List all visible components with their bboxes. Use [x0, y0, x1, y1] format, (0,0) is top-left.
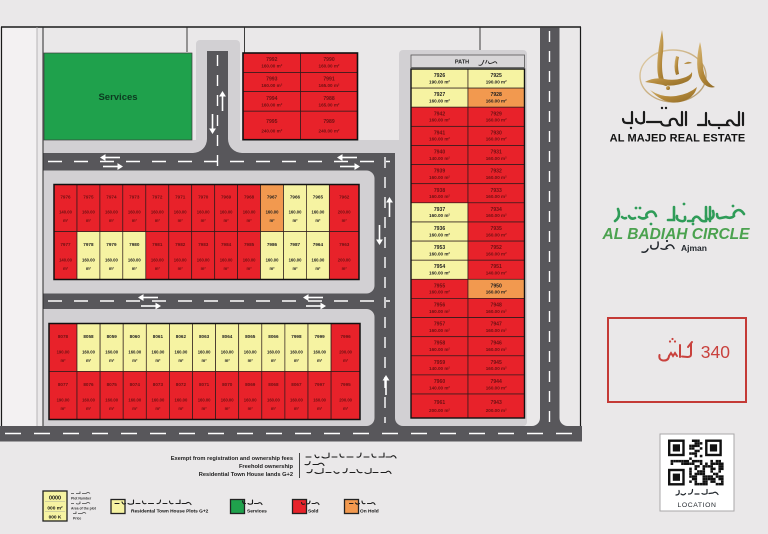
svg-text:7967: 7967	[267, 195, 278, 200]
svg-text:160.00 m²: 160.00 m²	[429, 271, 450, 276]
svg-text:160.00: 160.00	[244, 349, 257, 354]
svg-text:7955: 7955	[434, 283, 445, 289]
svg-text:7941: 7941	[434, 130, 445, 136]
svg-text:160.00: 160.00	[82, 397, 95, 402]
svg-text:7937: 7937	[434, 207, 445, 213]
svg-text:7935: 7935	[491, 226, 502, 232]
svg-text:160.00 m²: 160.00 m²	[486, 99, 507, 104]
svg-text:7987: 7987	[290, 242, 301, 247]
svg-text:7936: 7936	[434, 226, 445, 232]
svg-text:160.00 m²: 160.00 m²	[429, 137, 450, 142]
svg-text:200.00: 200.00	[338, 210, 351, 215]
svg-text:m²: m²	[202, 358, 208, 363]
svg-text:7925: 7925	[491, 73, 502, 79]
svg-text:160.00: 160.00	[243, 257, 256, 262]
svg-text:m²: m²	[269, 218, 275, 223]
svg-text:LOCATION: LOCATION	[677, 502, 716, 509]
svg-text:7976: 7976	[60, 195, 71, 200]
svg-text:AL MAJED REAL ESTATE: AL MAJED REAL ESTATE	[610, 133, 746, 145]
svg-text:160.00 m²: 160.00 m²	[486, 118, 507, 123]
svg-text:7988: 7988	[323, 96, 334, 102]
svg-text:160.00 m²: 160.00 m²	[261, 64, 282, 69]
svg-text:140.00 m²: 140.00 m²	[429, 156, 450, 161]
svg-text:8076: 8076	[83, 382, 94, 387]
svg-text:m²: m²	[269, 266, 275, 271]
svg-text:m²: m²	[248, 406, 254, 411]
svg-text:160.00 m²: 160.00 m²	[486, 366, 507, 371]
svg-text:7992: 7992	[266, 57, 277, 63]
svg-text:8060: 8060	[130, 334, 141, 339]
svg-text:7939: 7939	[434, 169, 445, 175]
svg-text:160.00: 160.00	[128, 257, 141, 262]
svg-text:7979: 7979	[106, 242, 117, 247]
svg-text:8064: 8064	[222, 334, 233, 339]
svg-text:160.00 m²: 160.00 m²	[429, 175, 450, 180]
svg-text:140.00: 140.00	[59, 210, 72, 215]
svg-text:160.00 m²: 160.00 m²	[429, 118, 450, 123]
svg-text:160.00: 160.00	[221, 349, 234, 354]
svg-text:Services: Services	[247, 509, 267, 515]
svg-text:160.00: 160.00	[128, 210, 141, 215]
svg-text:7996: 7996	[340, 334, 351, 339]
svg-text:140.00 m²: 140.00 m²	[429, 366, 450, 371]
svg-text:160.00 m²: 160.00 m²	[486, 290, 507, 295]
svg-text:7963: 7963	[339, 242, 350, 247]
svg-text:m²: m²	[292, 266, 298, 271]
svg-text:7978: 7978	[83, 242, 94, 247]
svg-text:m²: m²	[60, 406, 66, 411]
svg-text:160.00 m²: 160.00 m²	[429, 328, 450, 333]
svg-text:160.00: 160.00	[311, 257, 324, 262]
svg-text:m²: m²	[132, 358, 138, 363]
svg-text:m²: m²	[86, 266, 92, 271]
svg-text:140.00 m²: 140.00 m²	[486, 271, 507, 276]
svg-text:m²: m²	[109, 266, 115, 271]
svg-text:m²: m²	[109, 406, 115, 411]
svg-text:m²: m²	[294, 406, 300, 411]
svg-text:7947: 7947	[491, 322, 502, 328]
svg-text:160.00: 160.00	[266, 257, 279, 262]
svg-text:7957: 7957	[434, 322, 445, 328]
svg-text:7973: 7973	[129, 195, 140, 200]
svg-text:200.00: 200.00	[339, 349, 352, 354]
svg-text:7983: 7983	[198, 242, 209, 247]
svg-text:160.00 m²: 160.00 m²	[486, 232, 507, 237]
svg-text:7965: 7965	[313, 195, 324, 200]
svg-text:m²: m²	[202, 406, 208, 411]
svg-text:7982: 7982	[175, 242, 186, 247]
svg-text:7970: 7970	[198, 195, 209, 200]
svg-text:160.00: 160.00	[105, 397, 118, 402]
svg-text:7974: 7974	[106, 195, 117, 200]
svg-text:m²: m²	[343, 358, 349, 363]
svg-text:160.00: 160.00	[105, 349, 118, 354]
svg-text:7966: 7966	[290, 195, 301, 200]
svg-text:m²: m²	[178, 266, 184, 271]
svg-text:160.00: 160.00	[244, 397, 257, 402]
svg-text:8065: 8065	[245, 334, 256, 339]
svg-text:160.00: 160.00	[174, 397, 187, 402]
svg-text:7945: 7945	[491, 360, 502, 366]
svg-text:7972: 7972	[152, 195, 163, 200]
svg-text:Plot Number: Plot Number	[71, 497, 92, 501]
svg-text:m²: m²	[155, 358, 161, 363]
svg-text:190.00 m²: 190.00 m²	[486, 79, 507, 84]
svg-text:7938: 7938	[434, 188, 445, 194]
svg-text:160.00: 160.00	[221, 397, 234, 402]
svg-text:m²: m²	[155, 266, 161, 271]
svg-text:m²: m²	[342, 266, 348, 271]
svg-text:7953: 7953	[434, 245, 445, 251]
svg-text:7932: 7932	[491, 169, 502, 175]
svg-text:7993: 7993	[266, 77, 277, 83]
svg-text:Freehold ownership: Freehold ownership	[239, 464, 294, 470]
svg-text:160.00 m²: 160.00 m²	[429, 213, 450, 218]
svg-text:8068: 8068	[268, 382, 279, 387]
svg-text:160.00: 160.00	[243, 210, 256, 215]
svg-text:160.00: 160.00	[105, 257, 118, 262]
svg-text:160.00: 160.00	[128, 349, 141, 354]
svg-text:160.00 m²: 160.00 m²	[486, 156, 507, 161]
svg-text:m²: m²	[271, 406, 277, 411]
svg-text:160.00 m²: 160.00 m²	[486, 309, 507, 314]
svg-text:7975: 7975	[83, 195, 94, 200]
svg-text:160.00: 160.00	[151, 257, 164, 262]
svg-text:200.00 m²: 200.00 m²	[486, 408, 507, 413]
svg-text:m²: m²	[224, 218, 230, 223]
svg-text:7994: 7994	[266, 96, 277, 102]
svg-text:7929: 7929	[491, 111, 502, 117]
svg-text:m²: m²	[271, 358, 277, 363]
svg-text:160.00: 160.00	[198, 397, 211, 402]
svg-text:340: 340	[701, 342, 730, 362]
svg-text:8058: 8058	[83, 334, 94, 339]
svg-text:160.00: 160.00	[290, 349, 303, 354]
svg-text:7980: 7980	[129, 242, 140, 247]
svg-text:160.00: 160.00	[220, 257, 233, 262]
svg-text:165.00 m²: 165.00 m²	[319, 102, 340, 107]
svg-text:160.00: 160.00	[174, 349, 187, 354]
svg-text:160.00 m²: 160.00 m²	[261, 83, 282, 88]
svg-text:7933: 7933	[491, 188, 502, 194]
svg-text:8063: 8063	[199, 334, 210, 339]
svg-text:Ajman: Ajman	[681, 243, 707, 253]
svg-text:160.00: 160.00	[267, 397, 280, 402]
svg-text:165.00 m²: 165.00 m²	[319, 83, 340, 88]
svg-text:7954: 7954	[434, 264, 445, 270]
svg-text:m²: m²	[247, 218, 253, 223]
svg-text:160.00 m²: 160.00 m²	[429, 347, 450, 352]
svg-text:7964: 7964	[313, 242, 324, 247]
svg-text:8067: 8067	[291, 382, 302, 387]
svg-text:7981: 7981	[152, 242, 163, 247]
svg-text:m²: m²	[109, 218, 115, 223]
svg-text:m²: m²	[132, 406, 138, 411]
svg-text:7990: 7990	[323, 57, 334, 63]
svg-text:Residential Town House lands G: Residential Town House lands G+2	[199, 472, 293, 478]
svg-text:Sold: Sold	[308, 509, 318, 515]
svg-text:7958: 7958	[434, 341, 445, 347]
svg-text:160.00 m²: 160.00 m²	[486, 175, 507, 180]
svg-text:m²: m²	[294, 358, 300, 363]
svg-text:240.00 m²: 240.00 m²	[319, 129, 340, 134]
svg-text:000 K: 000 K	[49, 515, 62, 521]
svg-text:7999: 7999	[314, 334, 325, 339]
svg-text:160.00: 160.00	[105, 210, 118, 215]
svg-text:m²: m²	[201, 266, 207, 271]
svg-text:Area of the plot: Area of the plot	[71, 507, 97, 511]
svg-text:0000: 0000	[49, 496, 61, 502]
svg-text:8059: 8059	[107, 334, 118, 339]
svg-text:m²: m²	[155, 218, 161, 223]
svg-text:7956: 7956	[434, 303, 445, 309]
svg-text:7959: 7959	[434, 360, 445, 366]
svg-text:m²: m²	[132, 266, 138, 271]
svg-text:160.00: 160.00	[197, 257, 210, 262]
svg-text:m²: m²	[178, 218, 184, 223]
svg-text:7995: 7995	[340, 382, 351, 387]
svg-text:7998: 7998	[291, 334, 302, 339]
svg-text:On Hold: On Hold	[360, 509, 379, 515]
svg-text:190.00: 190.00	[57, 397, 70, 402]
svg-text:7961: 7961	[434, 400, 445, 406]
svg-text:8072: 8072	[176, 382, 187, 387]
svg-text:160.00: 160.00	[151, 349, 164, 354]
svg-text:7995: 7995	[266, 119, 277, 125]
svg-text:160.00 m²: 160.00 m²	[319, 64, 340, 69]
svg-text:m²: m²	[225, 358, 231, 363]
svg-text:Price: Price	[73, 517, 81, 521]
svg-text:160.00: 160.00	[267, 349, 280, 354]
svg-text:7944: 7944	[491, 379, 502, 385]
svg-text:Residental Town House Plots G+: Residental Town House Plots G+2	[131, 509, 209, 515]
svg-text:160.00: 160.00	[290, 397, 303, 402]
svg-text:160.00: 160.00	[151, 397, 164, 402]
svg-text:m²: m²	[315, 218, 321, 223]
svg-text:m²: m²	[342, 218, 348, 223]
svg-text:7991: 7991	[323, 77, 334, 83]
svg-text:7930: 7930	[491, 130, 502, 136]
svg-text:160.00 m²: 160.00 m²	[486, 251, 507, 256]
svg-text:7946: 7946	[491, 341, 502, 347]
svg-text:7969: 7969	[221, 195, 232, 200]
svg-text:190.00 m²: 190.00 m²	[429, 79, 450, 84]
svg-text:7977: 7977	[60, 242, 71, 247]
svg-text:7951: 7951	[491, 264, 502, 270]
svg-text:160.00: 160.00	[174, 257, 187, 262]
svg-text:200.00 m²: 200.00 m²	[429, 408, 450, 413]
svg-text:m²: m²	[86, 358, 92, 363]
svg-text:8078: 8078	[58, 334, 69, 339]
svg-text:190.00: 190.00	[57, 349, 70, 354]
svg-text:160.00 m²: 160.00 m²	[429, 290, 450, 295]
svg-text:7986: 7986	[267, 242, 278, 247]
svg-text:m²: m²	[60, 358, 66, 363]
svg-text:160.00: 160.00	[313, 397, 326, 402]
svg-text:160.00 m²: 160.00 m²	[486, 137, 507, 142]
svg-text:m²: m²	[317, 358, 323, 363]
svg-text:7927: 7927	[434, 92, 445, 98]
svg-text:7968: 7968	[244, 195, 255, 200]
svg-text:7942: 7942	[434, 111, 445, 117]
svg-text:m²: m²	[63, 218, 69, 223]
svg-text:160.00 m²: 160.00 m²	[486, 328, 507, 333]
svg-text:7985: 7985	[244, 242, 255, 247]
svg-text:7971: 7971	[175, 195, 186, 200]
svg-text:m²: m²	[343, 406, 349, 411]
svg-text:m²: m²	[248, 358, 254, 363]
svg-text:160.00: 160.00	[197, 210, 210, 215]
svg-text:7934: 7934	[491, 207, 502, 213]
svg-text:160.00 m²: 160.00 m²	[486, 213, 507, 218]
svg-text:160.00: 160.00	[198, 349, 211, 354]
svg-text:m²: m²	[155, 406, 161, 411]
svg-text:7940: 7940	[434, 150, 445, 156]
svg-text:8074: 8074	[130, 382, 141, 387]
svg-text:8077: 8077	[58, 382, 69, 387]
svg-text:8071: 8071	[199, 382, 210, 387]
svg-text:7950: 7950	[491, 283, 502, 289]
svg-text:m²: m²	[86, 218, 92, 223]
svg-text:160.00: 160.00	[82, 210, 95, 215]
svg-text:160.00: 160.00	[311, 210, 324, 215]
svg-text:7943: 7943	[491, 400, 502, 406]
svg-text:160.00: 160.00	[82, 257, 95, 262]
svg-text:160.00: 160.00	[313, 349, 326, 354]
svg-text:m²: m²	[317, 406, 323, 411]
svg-text:160.00 m²: 160.00 m²	[261, 102, 282, 107]
svg-text:7928: 7928	[491, 92, 502, 98]
svg-text:PATH: PATH	[455, 60, 469, 66]
svg-text:000 m²: 000 m²	[47, 506, 63, 512]
svg-text:160.00 m²: 160.00 m²	[486, 194, 507, 199]
svg-text:m²: m²	[292, 218, 298, 223]
svg-text:m²: m²	[315, 266, 321, 271]
svg-text:160.00 m²: 160.00 m²	[429, 232, 450, 237]
svg-text:7984: 7984	[221, 242, 232, 247]
svg-text:160.00 m²: 160.00 m²	[429, 251, 450, 256]
svg-text:m²: m²	[178, 406, 184, 411]
svg-text:160.00: 160.00	[266, 210, 279, 215]
svg-text:240.00 m²: 240.00 m²	[261, 129, 282, 134]
svg-text:160.00 m²: 160.00 m²	[486, 347, 507, 352]
svg-text:8070: 8070	[222, 382, 233, 387]
svg-text:200.00: 200.00	[338, 257, 351, 262]
svg-text:7926: 7926	[434, 73, 445, 79]
svg-text:7931: 7931	[491, 150, 502, 156]
svg-text:160.00: 160.00	[174, 210, 187, 215]
svg-text:8066: 8066	[268, 334, 279, 339]
svg-text:Services: Services	[98, 92, 137, 103]
svg-text:7948: 7948	[491, 303, 502, 309]
svg-text:160.00: 160.00	[289, 210, 302, 215]
svg-text:m²: m²	[86, 406, 92, 411]
svg-text:160.00 m²: 160.00 m²	[429, 99, 450, 104]
svg-text:m²: m²	[224, 266, 230, 271]
svg-text:m²: m²	[178, 358, 184, 363]
svg-text:200.00: 200.00	[339, 397, 352, 402]
svg-text:7997: 7997	[314, 382, 325, 387]
svg-text:m²: m²	[247, 266, 253, 271]
svg-text:m²: m²	[109, 358, 115, 363]
svg-text:140.00 m²: 140.00 m²	[429, 385, 450, 390]
svg-text:160.00 m²: 160.00 m²	[429, 309, 450, 314]
svg-text:m²: m²	[63, 266, 69, 271]
svg-text:160.00 m²: 160.00 m²	[429, 194, 450, 199]
svg-text:8073: 8073	[153, 382, 164, 387]
svg-text:160.00 m²: 160.00 m²	[486, 385, 507, 390]
svg-text:8061: 8061	[153, 334, 164, 339]
svg-text:160.00: 160.00	[82, 349, 95, 354]
svg-text:7989: 7989	[323, 119, 334, 125]
svg-text:m²: m²	[225, 406, 231, 411]
svg-text:m²: m²	[132, 218, 138, 223]
svg-text:160.00: 160.00	[289, 257, 302, 262]
svg-text:7962: 7962	[339, 195, 350, 200]
svg-text:7960: 7960	[434, 379, 445, 385]
svg-text:m²: m²	[201, 218, 207, 223]
svg-text:160.00: 160.00	[220, 210, 233, 215]
svg-text:8069: 8069	[245, 382, 256, 387]
svg-text:AL BADIAH CIRCLE: AL BADIAH CIRCLE	[602, 226, 751, 243]
svg-text:140.00: 140.00	[59, 257, 72, 262]
svg-text:Exempt from registration and o: Exempt from registration and ownership f…	[171, 456, 293, 462]
svg-text:160.00: 160.00	[128, 397, 141, 402]
svg-text:8075: 8075	[107, 382, 118, 387]
svg-text:8062: 8062	[176, 334, 187, 339]
svg-text:7952: 7952	[491, 245, 502, 251]
svg-text:160.00: 160.00	[151, 210, 164, 215]
